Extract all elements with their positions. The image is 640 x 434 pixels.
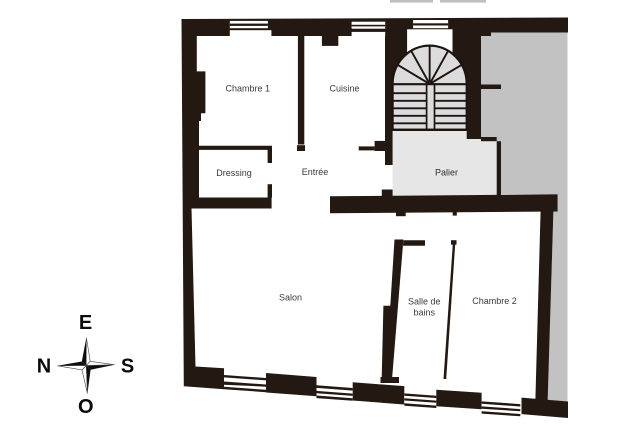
svg-text:bains: bains <box>414 308 436 318</box>
svg-text:E: E <box>79 312 92 334</box>
svg-text:Salle de: Salle de <box>408 296 441 306</box>
svg-text:Salon: Salon <box>279 292 302 302</box>
svg-text:O: O <box>78 396 94 418</box>
svg-text:N: N <box>37 356 51 378</box>
svg-text:S: S <box>121 356 134 378</box>
svg-text:Dressing: Dressing <box>216 168 252 178</box>
svg-text:Chambre 2: Chambre 2 <box>472 296 517 306</box>
svg-text:Palier: Palier <box>435 167 458 177</box>
svg-text:Cuisine: Cuisine <box>329 84 359 94</box>
svg-text:Chambre 1: Chambre 1 <box>226 84 271 94</box>
svg-text:Entrée: Entrée <box>302 167 329 177</box>
